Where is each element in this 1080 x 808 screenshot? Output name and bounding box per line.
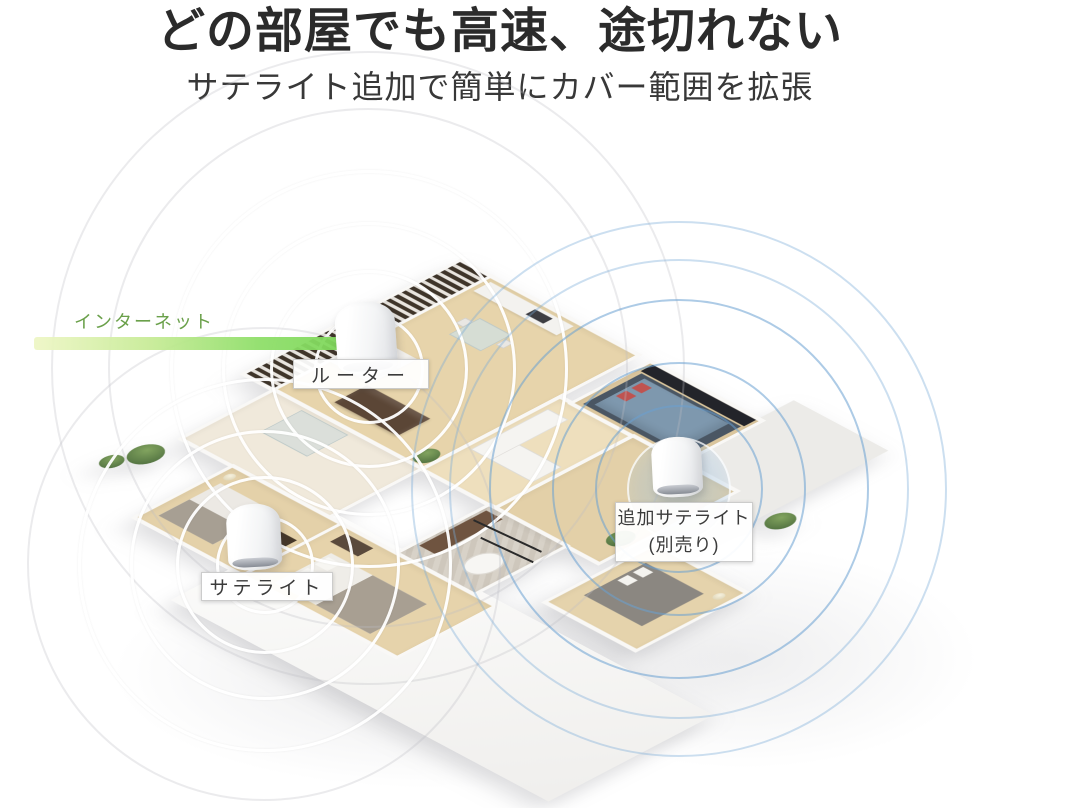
internet-label: インターネット xyxy=(74,308,214,334)
satellite-label: サテライト xyxy=(201,572,333,601)
router-label: ルーター xyxy=(293,359,429,389)
additional-satellite-device xyxy=(650,436,703,499)
internet-line xyxy=(34,337,368,350)
satellite-device-body xyxy=(225,503,282,572)
router-label-text: ルーター xyxy=(311,361,411,388)
satellite-device-base xyxy=(232,557,278,568)
additional-satellite-label-line1: 追加サテライト xyxy=(618,505,751,532)
mesh-wifi-hero-image: どの部屋でも高速、途切れない サテライト追加で簡単にカバー範囲を拡張 xyxy=(0,0,1080,808)
satellite-label-text: サテライト xyxy=(209,573,324,600)
satellite-device xyxy=(225,503,282,572)
additional-satellite-label-line2: (別売り) xyxy=(649,532,720,559)
additional-satellite-device-body xyxy=(650,436,703,499)
additional-satellite-label: 追加サテライト (別売り) xyxy=(615,502,753,562)
floorplan-illustration: インターネット ルーター サテライト 追加サテライト (別売り) xyxy=(0,0,1080,808)
additional-satellite-device-base xyxy=(657,484,699,495)
